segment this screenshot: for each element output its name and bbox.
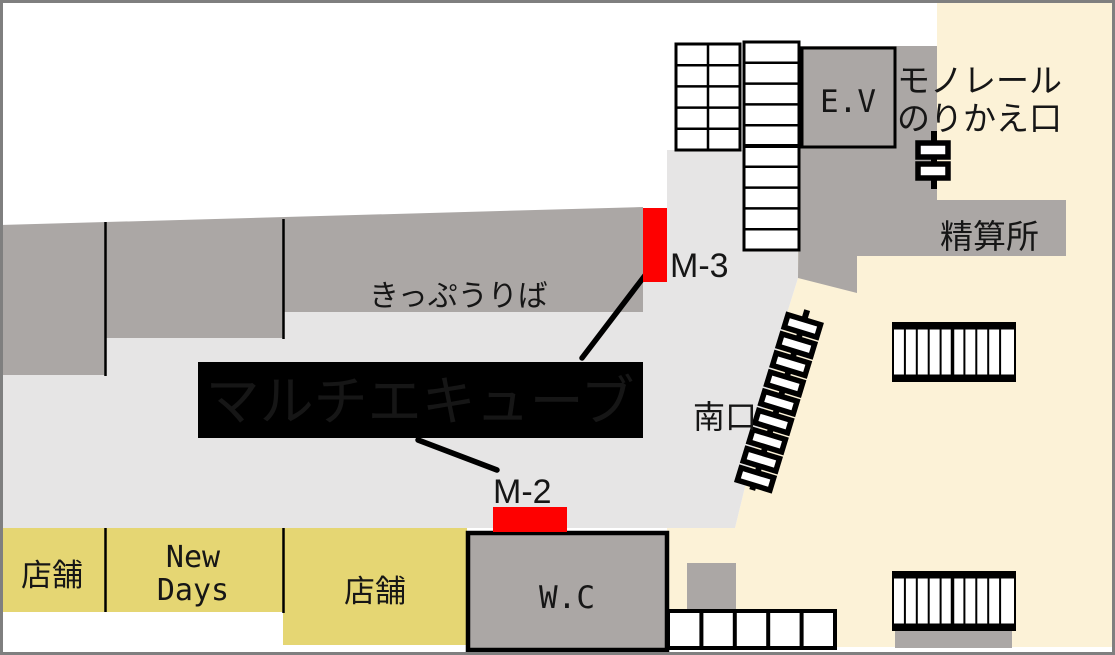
toilet-box: W.C bbox=[468, 533, 667, 650]
stairs-icon-top-center bbox=[744, 42, 799, 250]
title-banner: マルチエキューブ bbox=[198, 362, 643, 438]
toilet-label: W.C bbox=[539, 580, 595, 616]
fare-adjustment-label: 精算所 bbox=[940, 218, 1039, 255]
stairs-icon-bottom-right bbox=[893, 572, 1015, 648]
marker-m2-label: M-2 bbox=[493, 473, 552, 511]
marker-m3-highlight bbox=[643, 208, 667, 282]
ticket-office-label: きっぷうりば bbox=[369, 280, 548, 313]
shop-left-label: 店舗 bbox=[21, 558, 83, 593]
station-map-canvas: E.V モノレール のりかえ口 精算所 南口 bbox=[0, 0, 1115, 655]
shop-right-label: 店舗 bbox=[344, 574, 406, 609]
monorail-transfer-label-line2: のりかえ口 bbox=[897, 100, 1062, 137]
elevator-label: E.V bbox=[820, 84, 876, 120]
south-exit-label: 南口 bbox=[693, 399, 757, 435]
gate-row-icon bbox=[668, 611, 835, 648]
stairs-icon-top-left bbox=[676, 44, 740, 150]
newdays-label-line2: Days bbox=[157, 573, 229, 608]
title-banner-label: マルチエキューブ bbox=[206, 372, 635, 432]
monorail-transfer-label-line1: モノレール bbox=[897, 62, 1062, 99]
elevator-box: E.V bbox=[802, 48, 895, 147]
stairs-icon-upper-right bbox=[893, 323, 1015, 381]
marker-m3-label: M-3 bbox=[670, 247, 729, 285]
newdays-label-line1: New bbox=[166, 540, 221, 575]
pillar-box bbox=[687, 563, 736, 610]
station-floor-map: E.V モノレール のりかえ口 精算所 南口 bbox=[0, 0, 1115, 655]
